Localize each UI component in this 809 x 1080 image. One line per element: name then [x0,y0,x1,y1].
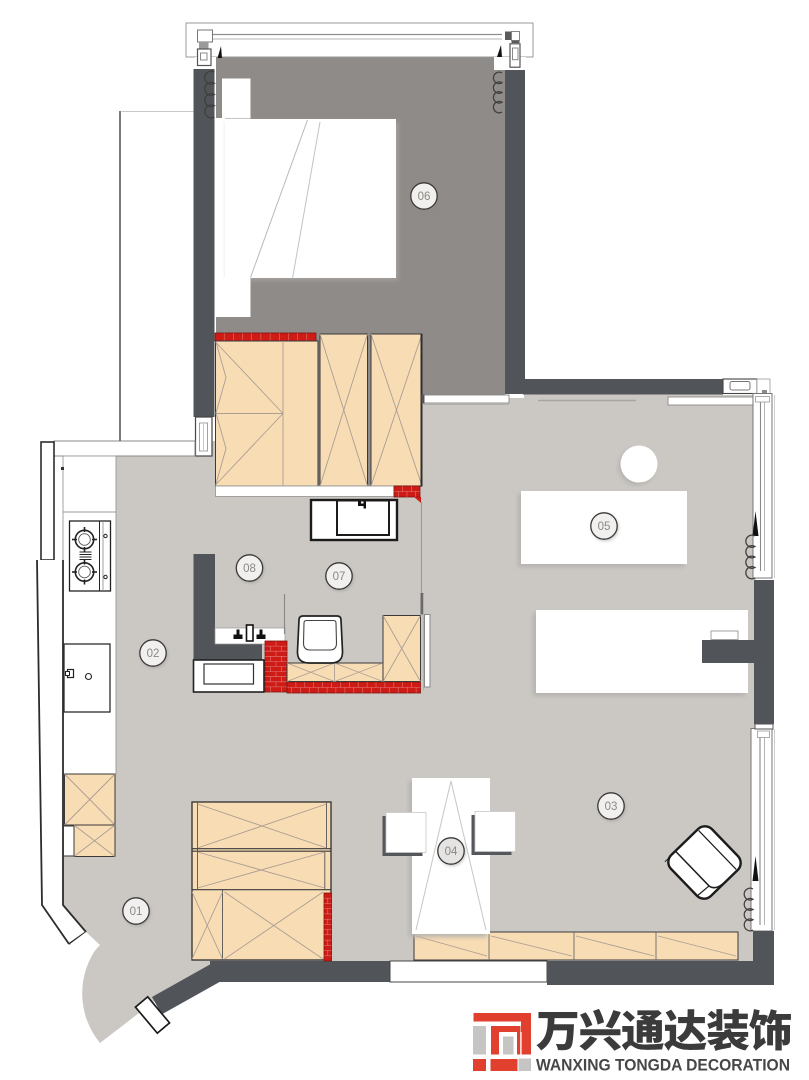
svg-text:06: 06 [418,191,431,203]
svg-text:WANXING TONGDA DECORATION: WANXING TONGDA DECORATION [536,1056,790,1075]
svg-text:01: 01 [130,906,143,918]
svg-text:08: 08 [243,563,256,575]
svg-text:02: 02 [147,648,160,660]
svg-text:07: 07 [333,571,346,583]
svg-text:04: 04 [445,846,458,858]
svg-text:05: 05 [598,521,611,533]
svg-text:03: 03 [605,801,618,813]
